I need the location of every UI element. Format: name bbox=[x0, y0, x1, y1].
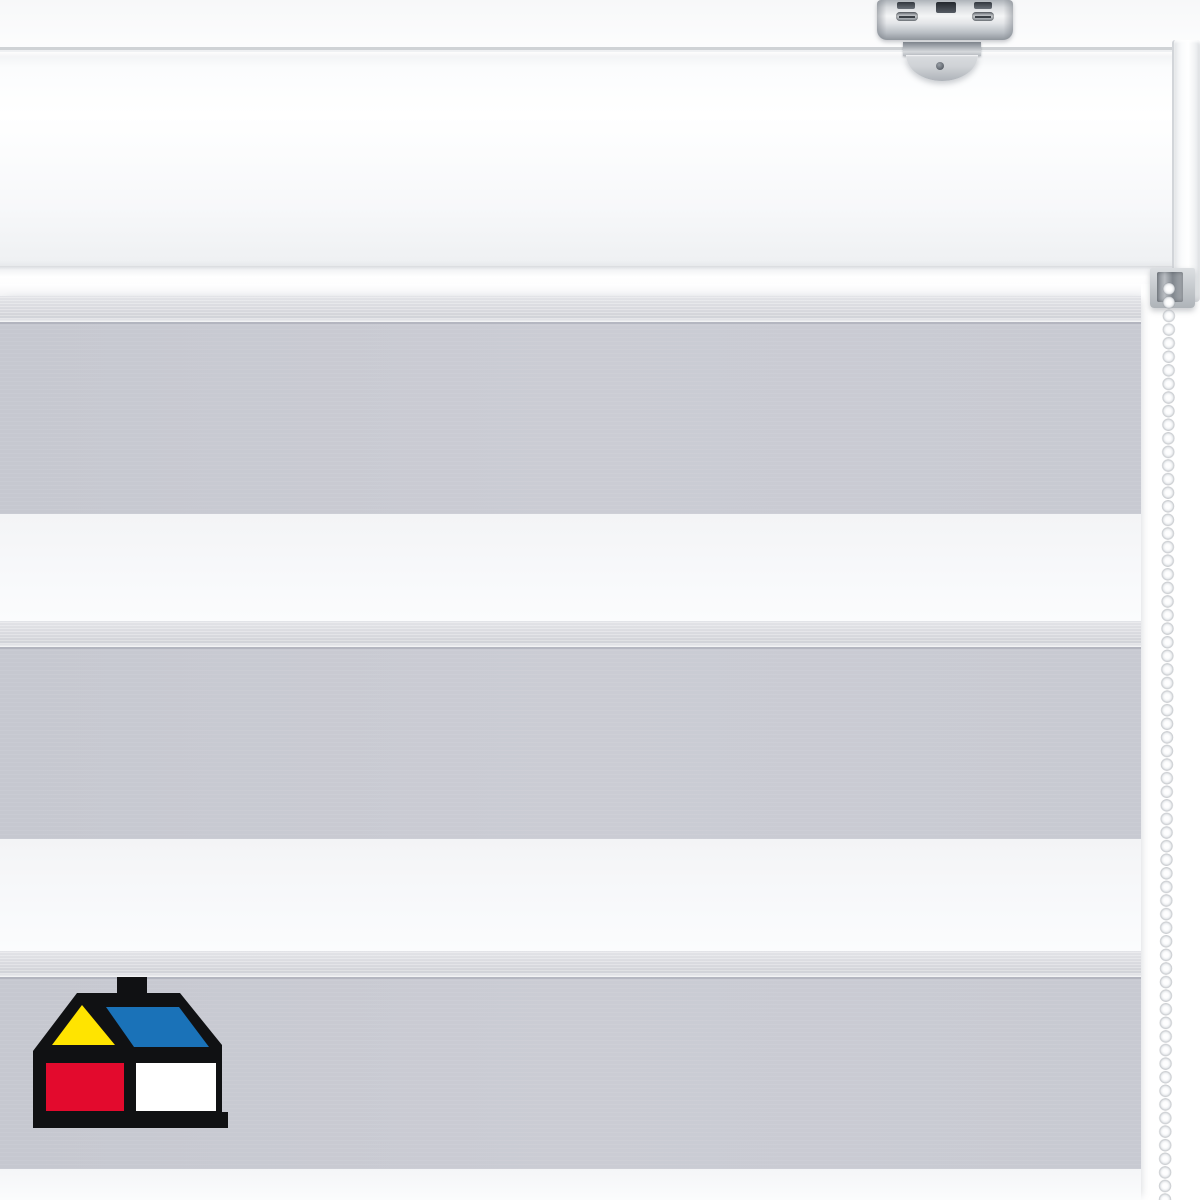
mounting-bracket bbox=[877, 0, 1013, 40]
fabric-band-sheer bbox=[0, 621, 1141, 647]
bracket-slot-icon bbox=[897, 2, 915, 9]
fabric-band-white bbox=[0, 514, 1141, 621]
fabric-band-whiteEnd bbox=[0, 1169, 1141, 1200]
bracket-screw bbox=[896, 12, 918, 21]
headrail-shadow bbox=[0, 284, 1141, 296]
fabric-band-gray bbox=[0, 647, 1141, 839]
fabric-band-white2 bbox=[0, 839, 1141, 951]
bracket-slot-icon bbox=[974, 2, 992, 9]
scene bbox=[0, 0, 1200, 1200]
headrail bbox=[0, 47, 1174, 269]
fabric-band-sheer bbox=[0, 296, 1141, 322]
headrail-bottom-lip bbox=[0, 266, 1174, 284]
bracket-slot-icon bbox=[936, 2, 956, 13]
bracket-clip-band bbox=[903, 42, 981, 56]
logo-red-wall bbox=[46, 1063, 124, 1111]
logo-white-wall bbox=[136, 1063, 216, 1111]
fabric-band-gray bbox=[0, 322, 1141, 514]
bracket-screw bbox=[972, 12, 994, 21]
homecenter-logo bbox=[33, 977, 228, 1128]
bracket-tab-hole bbox=[936, 62, 944, 70]
fabric-band-sheer bbox=[0, 951, 1141, 977]
headrail-endcap bbox=[1172, 40, 1200, 302]
